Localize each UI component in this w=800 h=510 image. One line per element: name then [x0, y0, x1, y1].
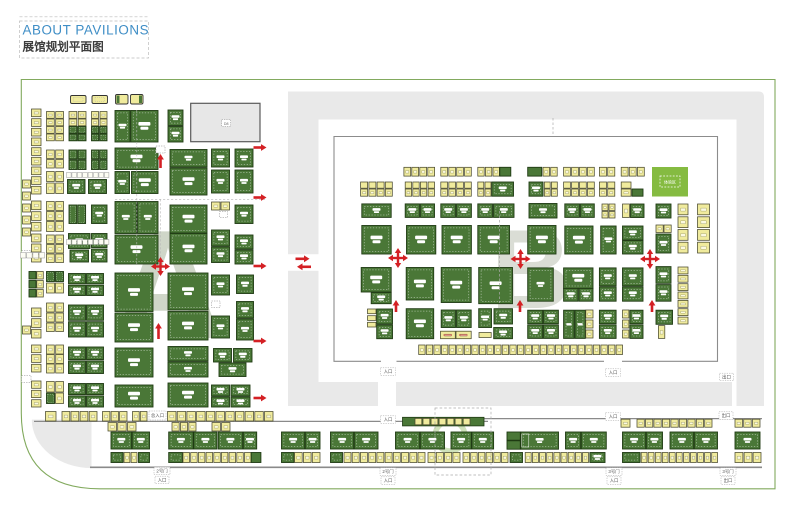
svg-text:入口: 入口 [384, 478, 393, 483]
svg-text:入口: 入口 [609, 370, 618, 375]
svg-text:D8: D8 [224, 122, 229, 126]
svg-text:ABOUT PAVILIONS: ABOUT PAVILIONS [23, 23, 150, 38]
svg-text:2号门: 2号门 [382, 468, 393, 475]
svg-text:3号门: 3号门 [722, 468, 733, 475]
svg-text:2号门: 2号门 [156, 468, 167, 475]
svg-text:出口: 出口 [722, 412, 731, 419]
svg-text:入口: 入口 [609, 414, 618, 419]
svg-text:总入口: 总入口 [151, 412, 164, 418]
svg-text:入口: 入口 [158, 478, 167, 483]
svg-text:入口: 入口 [384, 417, 393, 422]
svg-text:体验区: 体验区 [664, 179, 676, 185]
svg-text:出口: 出口 [722, 374, 731, 381]
svg-text:出口: 出口 [724, 477, 733, 484]
svg-text:3号门: 3号门 [608, 468, 619, 475]
svg-text:展馆规划平面图: 展馆规划平面图 [23, 40, 104, 54]
svg-text:入口: 入口 [384, 369, 393, 374]
svg-text:入口: 入口 [610, 478, 619, 483]
